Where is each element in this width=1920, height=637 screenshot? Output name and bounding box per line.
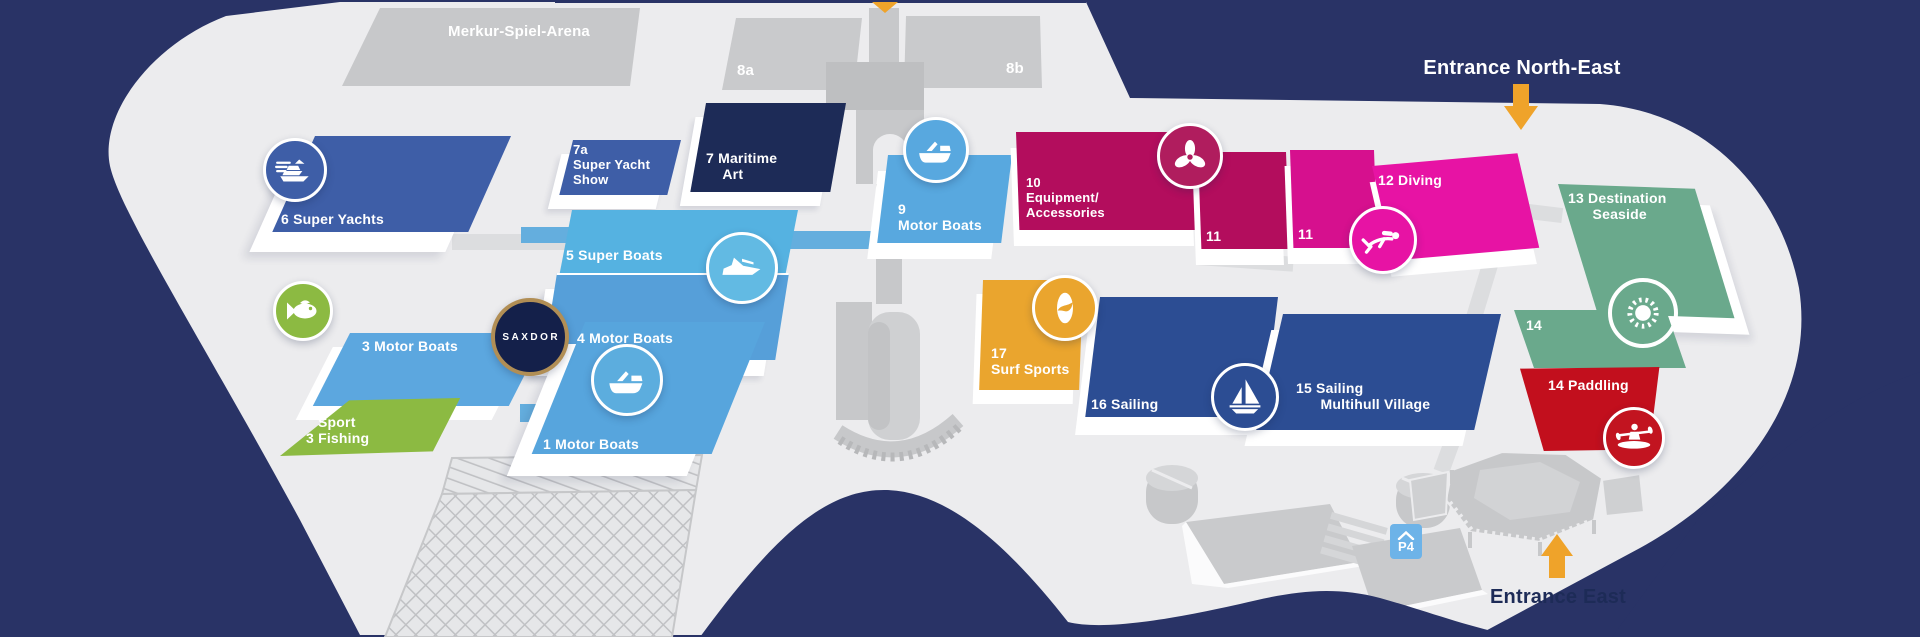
equipment-accessories-badge[interactable] (1157, 123, 1223, 189)
hall-15-label: 15 Sailing Multihull Village (1296, 380, 1430, 412)
hall-11b-label: 11 (1298, 226, 1313, 242)
motorboat-icon (605, 358, 649, 402)
propeller-icon (1169, 135, 1211, 177)
hall-3f-label: Sport 3 Fishing (306, 414, 369, 446)
hall-7-label: 7 Maritime Art (706, 150, 777, 182)
surfboard-icon (1044, 287, 1086, 329)
arrow-up-icon (1540, 534, 1574, 579)
hall-11a-label: 11 (1206, 228, 1221, 244)
sailing-badge[interactable] (1211, 363, 1279, 431)
hall-17-label: 17 Surf Sports (991, 345, 1069, 377)
entrance-north-east-label: Entrance North-East (1423, 57, 1620, 80)
super-yachts-badge[interactable] (263, 138, 327, 202)
entrance-east-label: Entrance East (1490, 586, 1626, 609)
sun-icon (1620, 290, 1666, 336)
saxdor-logo-text: SAXDOR (500, 332, 560, 343)
hall-15-multihull-village[interactable] (1256, 314, 1501, 430)
diving-badge[interactable] (1349, 206, 1417, 274)
parking-p4-badge[interactable]: P4 (1390, 524, 1422, 559)
hall-14p-label: 14 Paddling (1548, 377, 1629, 393)
entrance-north-east-arrow (1503, 84, 1539, 136)
hall-12-label: 12 Diving (1378, 172, 1442, 188)
hall-8b-label: 8b (1006, 60, 1024, 77)
arrow-tip-icon (872, 2, 898, 13)
venue-map: Merkur-Spiel-Arena 8a 8b 6 Super Yachts … (0, 0, 1920, 637)
surf-sports-badge[interactable] (1032, 275, 1098, 341)
hall-16-label: 16 Sailing (1091, 396, 1158, 412)
super-yacht-icon (274, 149, 316, 191)
paddling-badge[interactable] (1603, 407, 1665, 469)
hall-9-label: 9 Motor Boats (898, 201, 982, 233)
hall-1-label: 1 Motor Boats (543, 436, 639, 452)
arena-label: Merkur-Spiel-Arena (448, 23, 590, 40)
entrance-north-arrow (872, 0, 898, 18)
kayak-icon (1613, 417, 1655, 459)
hall-7a-label: 7a Super Yacht Show (573, 142, 650, 187)
hall-5-label: 5 Super Boats (566, 247, 663, 263)
hall-8a-label: 8a (737, 62, 754, 79)
arrow-down-icon (1503, 84, 1539, 131)
diver-icon (1361, 218, 1405, 262)
speedboat-icon (719, 245, 765, 291)
sailboat-icon (1223, 375, 1267, 419)
destination-seaside-badge[interactable] (1608, 278, 1678, 348)
hall-10-label: 10 Equipment/ Accessories (1026, 175, 1105, 220)
motorboat-icon (915, 129, 957, 171)
motor-boats-1-badge[interactable] (591, 344, 663, 416)
parking-p4-label: P4 (1398, 540, 1414, 553)
hall-3-label: 3 Motor Boats (362, 338, 458, 354)
fish-icon (283, 291, 323, 331)
saxdor-logo-badge[interactable]: SAXDOR (491, 298, 569, 376)
hall-14-label: 14 (1526, 317, 1542, 333)
super-boats-badge[interactable] (706, 232, 778, 304)
hall-13-label: 13 Destination Seaside (1568, 190, 1667, 222)
entrance-east-arrow (1540, 534, 1574, 584)
sport-fishing-badge[interactable] (273, 281, 333, 341)
hall-6-label: 6 Super Yachts (281, 211, 384, 227)
motor-boats-9-badge[interactable] (903, 117, 969, 183)
arena-building (342, 8, 640, 86)
